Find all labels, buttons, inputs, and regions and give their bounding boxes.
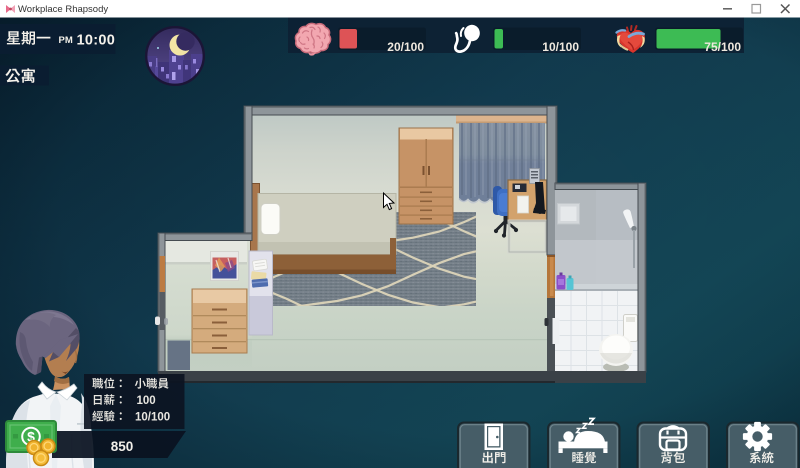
svg-text:100: 100 — [137, 395, 156, 407]
svg-text:10/100: 10/100 — [542, 40, 579, 54]
svg-text:Workplace Rhapsody: Workplace Rhapsody — [18, 4, 108, 15]
svg-text:PM: PM — [59, 35, 73, 46]
svg-text:850: 850 — [111, 439, 134, 454]
svg-text:10/100: 10/100 — [135, 411, 170, 423]
svg-text:10:00: 10:00 — [77, 33, 116, 49]
svg-text:20/100: 20/100 — [387, 40, 424, 54]
svg-text:75/100: 75/100 — [704, 40, 741, 54]
